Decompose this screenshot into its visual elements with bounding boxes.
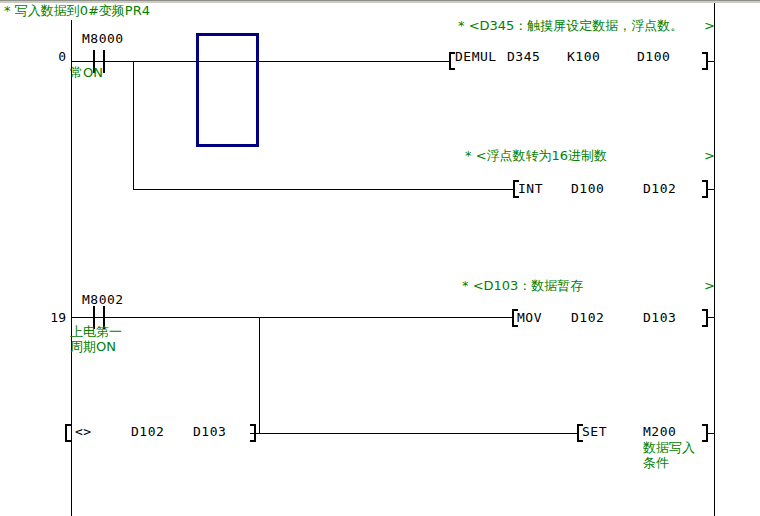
rung3-line: [71, 317, 512, 318]
rung3-branch-line: [259, 317, 260, 434]
demul-operand3[interactable]: D100: [637, 50, 670, 64]
contact-m8000-note: 常ON: [70, 65, 103, 80]
set-m200-note-line1: 数据写入: [643, 440, 695, 455]
int-op[interactable]: INT: [518, 182, 543, 196]
compare-bracket-open: [65, 424, 71, 442]
compare-op[interactable]: <>: [75, 425, 92, 439]
mov-op[interactable]: MOV: [517, 311, 542, 325]
contact-m8002-label[interactable]: M8002: [82, 293, 124, 307]
set-operand[interactable]: M200: [643, 425, 676, 439]
comment-d345: * <D345：触摸屏设定数据，浮点数。: [458, 18, 683, 33]
comment-d103-end-mark: >: [704, 278, 715, 293]
rung3-line-right-stub: [707, 317, 714, 318]
comment-float16-end-mark: >: [704, 148, 715, 163]
rung1-line: [71, 61, 449, 62]
right-power-rail: [714, 3, 715, 516]
demul-operand2[interactable]: K100: [567, 50, 600, 64]
mov-operand1[interactable]: D102: [571, 311, 604, 325]
rung3-step-number: 19: [38, 311, 66, 325]
rung4-line: [250, 433, 577, 434]
rung1-line-right-stub: [707, 61, 714, 62]
set-bracket-close: [702, 424, 708, 442]
compare-operand2[interactable]: D103: [193, 425, 226, 439]
demul-operand1[interactable]: D345: [507, 50, 540, 64]
rung1-step-number: 0: [38, 50, 66, 64]
program-title-comment: * 写入数据到0#变频PR4: [4, 3, 150, 18]
rung2-line: [133, 189, 513, 190]
demul-op[interactable]: DEMUL: [455, 50, 497, 64]
int-operand1[interactable]: D100: [571, 182, 604, 196]
compare-bracket-close: [250, 424, 256, 442]
int-operand2[interactable]: D102: [643, 182, 676, 196]
set-m200-note-line2: 条件: [643, 455, 669, 470]
set-op[interactable]: SET: [582, 425, 607, 439]
int-bracket-close: [702, 180, 708, 198]
rung1-branch-line: [133, 61, 134, 190]
comment-float16: * <浮点数转为16进制数: [465, 148, 607, 163]
demul-bracket-close: [702, 52, 708, 70]
left-power-rail: [71, 20, 72, 516]
comment-d103: * <D103：数据暂存: [462, 278, 583, 293]
mov-bracket-close: [702, 309, 708, 327]
rung2-line-right-stub: [707, 189, 714, 190]
contact-m8000-label[interactable]: M8000: [82, 32, 124, 46]
contact-m8002-note-line1: 上电第一: [70, 324, 122, 339]
ladder-editor-canvas[interactable]: * 写入数据到0#变频PR4 * <D345：触摸屏设定数据，浮点数。 > 0 …: [0, 0, 760, 516]
mov-operand2[interactable]: D103: [643, 311, 676, 325]
compare-operand1[interactable]: D102: [131, 425, 164, 439]
comment-d345-end-mark: >: [704, 18, 715, 33]
rung4-line-right-stub: [707, 433, 714, 434]
contact-m8002-note-line2: 周期ON: [70, 339, 116, 354]
edit-cursor[interactable]: [196, 33, 259, 147]
